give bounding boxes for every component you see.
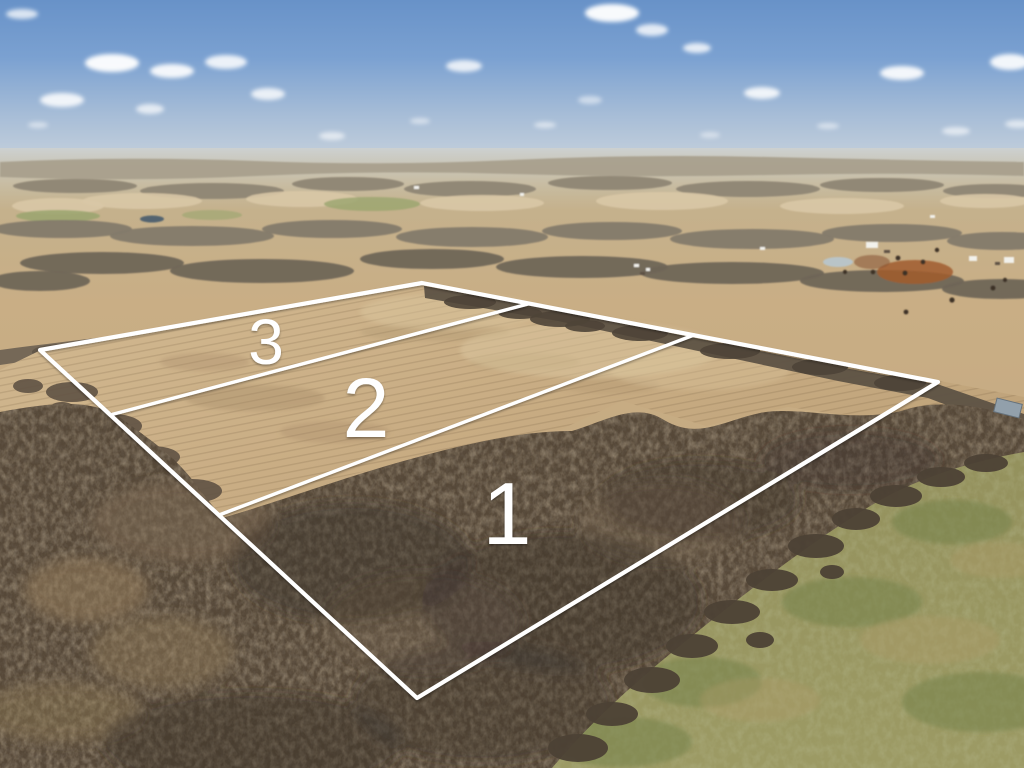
farm-building <box>646 268 650 271</box>
tree-clump <box>704 600 760 624</box>
barn <box>969 256 977 261</box>
aerial-photo: 1 2 3 <box>0 0 1024 768</box>
cedar-shrub <box>990 285 995 290</box>
roof <box>640 272 645 275</box>
tree-clump <box>832 508 880 530</box>
cloud <box>744 87 780 99</box>
wood-patch <box>170 259 354 283</box>
farm-building <box>520 193 524 196</box>
cloud <box>534 122 556 128</box>
wood-patch <box>404 181 536 197</box>
cloud <box>817 123 839 129</box>
lone-tree <box>820 565 844 579</box>
cloud <box>636 24 668 36</box>
wood-patch <box>640 262 824 284</box>
tree-clump <box>917 467 965 487</box>
wood-patch <box>542 222 682 240</box>
farm-building <box>414 186 419 189</box>
ground-patch <box>90 616 234 688</box>
wood-patch <box>820 178 944 192</box>
cloud <box>880 66 924 80</box>
wood-patch <box>548 176 672 190</box>
wood-patch <box>110 226 274 246</box>
farm-building <box>634 264 639 267</box>
cloud <box>683 43 711 53</box>
field-patch <box>780 198 904 214</box>
cloud <box>446 60 482 72</box>
wood-patch <box>262 220 402 238</box>
tree-clump <box>964 454 1008 472</box>
tan-patch <box>700 678 820 722</box>
barn <box>1004 257 1014 263</box>
cedar-shrub <box>896 256 901 261</box>
cloud <box>319 132 345 140</box>
cedar-shrub <box>902 270 907 275</box>
lake <box>140 216 164 223</box>
lot-label-1: 1 <box>483 464 532 563</box>
tree-clump <box>586 702 638 726</box>
cloud <box>942 127 970 135</box>
wood-patch <box>20 252 184 274</box>
wood-patch <box>396 227 548 247</box>
cloud <box>136 104 164 114</box>
cedar-shrub <box>949 297 954 302</box>
cedar-shrub <box>921 260 926 265</box>
wood-patch <box>360 249 504 269</box>
wood-patch <box>292 177 404 191</box>
shadow-patch <box>760 430 940 490</box>
cedar-shrub <box>935 248 939 252</box>
cloud <box>6 9 38 19</box>
dirt-patch <box>854 255 890 269</box>
tree-clump <box>548 734 608 762</box>
lot-label-2: 2 <box>343 361 390 455</box>
cedar-shrub <box>1003 278 1007 282</box>
roof <box>995 262 1000 265</box>
cloud <box>28 122 48 128</box>
wood-patch <box>670 229 834 249</box>
cedar-shrub <box>843 270 847 274</box>
cloud <box>700 132 720 138</box>
farm-building <box>930 215 935 218</box>
cedar-shrub <box>871 270 876 275</box>
tan-patch <box>860 616 1000 664</box>
green-field <box>324 197 420 211</box>
cloud <box>251 88 285 100</box>
lot-label-3: 3 <box>248 306 284 378</box>
pond <box>823 257 853 267</box>
tree-clump <box>565 320 605 332</box>
cloud <box>585 4 639 22</box>
farm-building <box>760 247 765 250</box>
roof <box>884 250 890 253</box>
wood-patch <box>822 224 962 242</box>
lone-tree <box>746 632 774 648</box>
lone-tree <box>13 379 43 393</box>
tree-clump <box>870 485 922 507</box>
tree-clump <box>746 569 798 591</box>
green-patch <box>892 500 1012 544</box>
tree-clump <box>666 634 718 658</box>
ground-patch <box>24 558 148 622</box>
cloud <box>150 64 194 78</box>
cloud <box>578 96 602 104</box>
barn <box>866 242 878 248</box>
cloud <box>205 55 247 69</box>
green-field <box>182 210 242 220</box>
cloud <box>85 54 139 72</box>
cloud <box>40 93 84 107</box>
field-patch <box>420 195 544 211</box>
cloud <box>410 118 430 124</box>
tree-clump <box>624 667 680 693</box>
tree-clump <box>788 534 844 558</box>
wood-patch <box>13 179 137 193</box>
sky <box>0 0 1024 165</box>
field-patch <box>596 192 728 210</box>
aerial-photo-stage: 1 2 3 <box>0 0 1024 768</box>
cedar-shrub <box>904 310 909 315</box>
soil-smudge <box>160 353 250 371</box>
